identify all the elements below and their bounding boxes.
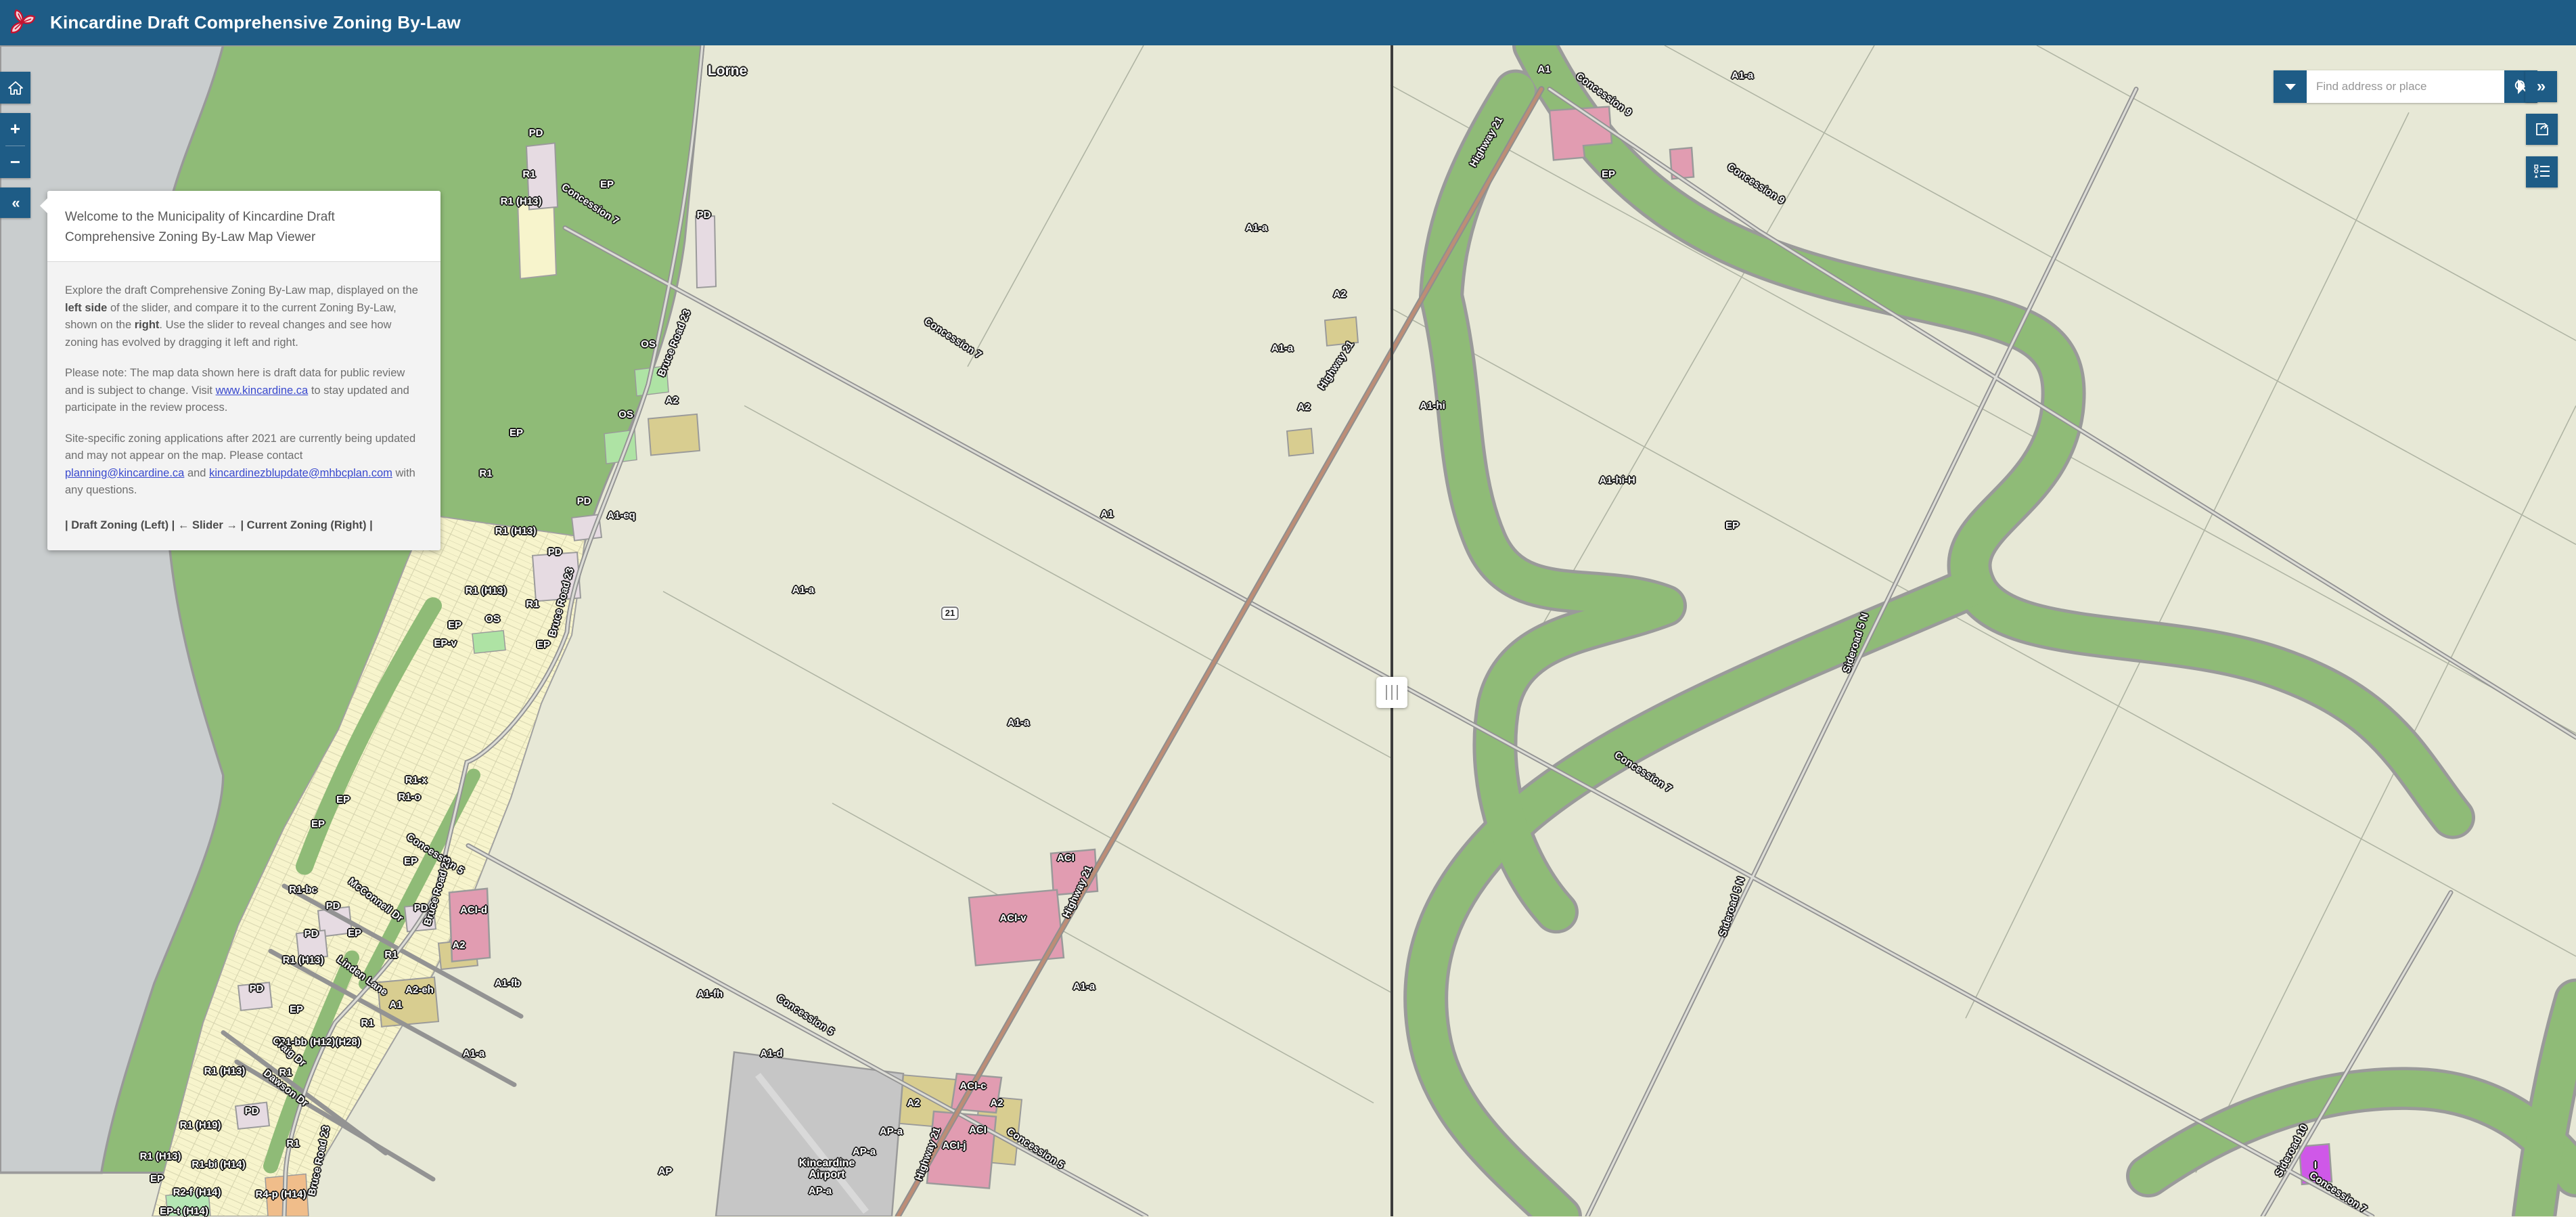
- home-button[interactable]: [0, 72, 30, 104]
- panel-paragraph-contact: Site-specific zoning applications after …: [65, 430, 424, 500]
- search-popup-pointer: [2518, 79, 2525, 94]
- zoom-in-button[interactable]: +: [0, 113, 30, 146]
- search-source-dropdown[interactable]: [2274, 70, 2307, 103]
- r2f-zone: [166, 1191, 210, 1216]
- body-text: and: [184, 467, 209, 479]
- panel-slider-legend: | Draft Zoning (Left) | ← Slider → | Cur…: [65, 517, 424, 535]
- search-widget: [2274, 70, 2537, 103]
- panel-header: Welcome to the Municipality of Kincardin…: [47, 191, 440, 262]
- app-header: Kincardine Draft Comprehensive Zoning By…: [0, 0, 2576, 45]
- chevron-down-icon: [2285, 84, 2296, 90]
- swipe-slider-handle[interactable]: [1376, 677, 1407, 708]
- welcome-panel: Welcome to the Municipality of Kincardin…: [47, 191, 440, 550]
- panel-pointer: [40, 198, 48, 214]
- legend-button[interactable]: [2526, 156, 2558, 187]
- app-root: { "header": { "title": "Kincardine Draft…: [0, 0, 2576, 1216]
- panel-body: Explore the draft Comprehensive Zoning B…: [47, 262, 440, 550]
- bold-text: left side: [65, 302, 107, 314]
- share-icon: [2534, 121, 2550, 137]
- collapse-panel-button[interactable]: «: [0, 187, 30, 218]
- airport-zone: [716, 1052, 903, 1216]
- home-icon: [8, 81, 23, 95]
- panel-paragraph-explore: Explore the draft Comprehensive Zoning B…: [65, 282, 424, 351]
- inline-link[interactable]: kincardinezblupdate@mhbcplan.com: [209, 467, 392, 479]
- legend-list-icon: [2533, 163, 2551, 181]
- kincardine-logo-icon: [7, 7, 38, 39]
- bold-text: right: [135, 319, 160, 331]
- body-text: Explore the draft Comprehensive Zoning B…: [65, 284, 418, 296]
- inline-link[interactable]: www.kincardine.ca: [216, 384, 309, 397]
- zoom-control: + −: [0, 113, 30, 178]
- share-button[interactable]: [2526, 114, 2558, 145]
- expand-toolbar-button[interactable]: »: [2525, 71, 2557, 102]
- inline-link[interactable]: planning@kincardine.ca: [65, 467, 184, 479]
- zoom-out-button[interactable]: −: [0, 146, 30, 178]
- page-title: Kincardine Draft Comprehensive Zoning By…: [50, 12, 461, 33]
- swipe-slider-line[interactable]: [1391, 45, 1393, 1216]
- panel-title: Welcome to the Municipality of Kincardin…: [65, 207, 423, 248]
- panel-paragraph-note: Please note: The map data shown here is …: [65, 365, 424, 417]
- search-input[interactable]: [2307, 70, 2504, 103]
- body-text: Site-specific zoning applications after …: [65, 433, 415, 462]
